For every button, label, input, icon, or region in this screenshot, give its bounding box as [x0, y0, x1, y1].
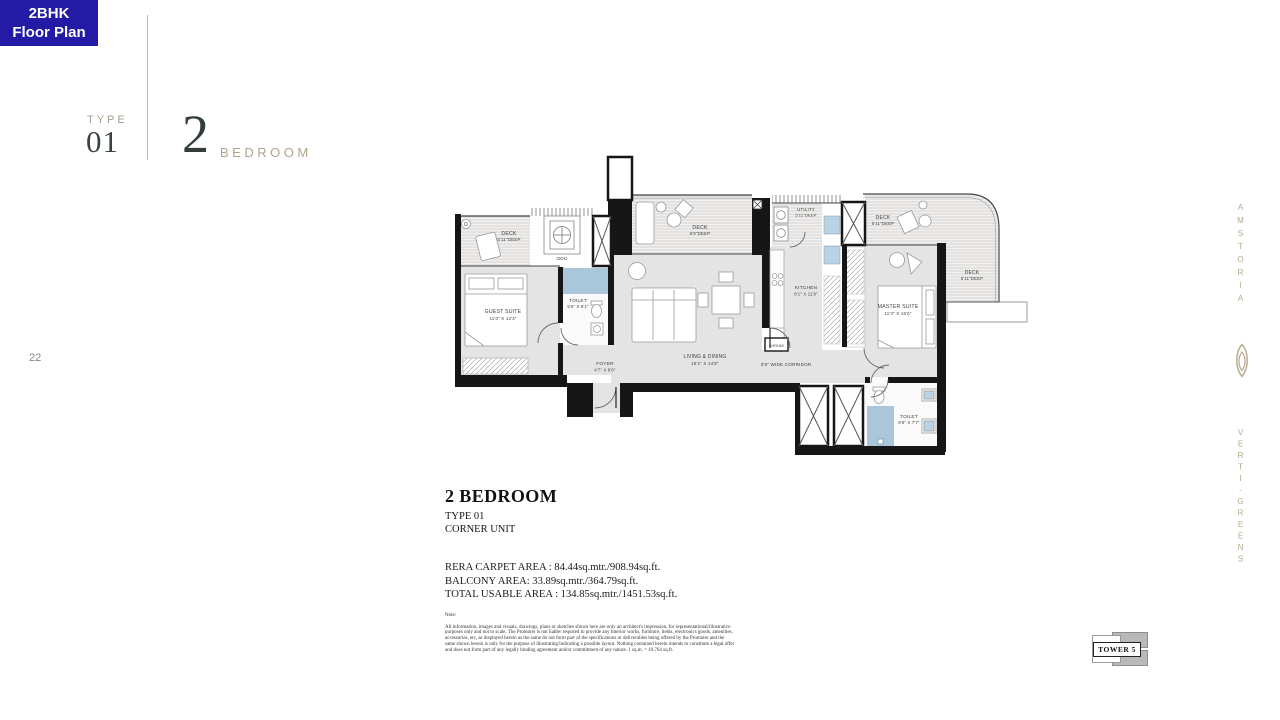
deck-table-icon — [667, 213, 681, 227]
brand-leaf-logo — [1231, 343, 1253, 379]
floor-plan: DECK 5'11"DEEP ODU GUEST SUITE 11'0" X 1… — [450, 150, 1040, 460]
brand-amstoria: AMSTORIA — [1236, 203, 1245, 307]
badge-line1: 2BHK — [29, 4, 70, 23]
plant-icon — [919, 201, 927, 209]
deck-top-right-dim: 5'11"DEEP — [872, 221, 894, 226]
window-marker-icon — [753, 200, 762, 209]
floorplan-badge: 2BHK Floor Plan — [0, 0, 98, 46]
note-label: Note: — [445, 613, 735, 619]
brand-vertigreens: VERTI-GREENS — [1236, 428, 1245, 566]
unit-details: 2 BEDROOM TYPE 01 CORNER UNIT — [445, 486, 557, 536]
unit-title: 2 BEDROOM — [445, 486, 557, 507]
kitchen-dim: 8'1" X 11'9" — [794, 292, 818, 297]
type-number: 01 — [86, 124, 119, 160]
master-suite-label: MASTER SUITE — [878, 304, 919, 310]
page-number: 22 — [29, 352, 41, 364]
balcony-area: BALCONY AREA: 33.89sq.mtr./364.79sq.ft. — [445, 575, 677, 589]
unit-type: TYPE 01 — [445, 510, 557, 523]
badge-line2: Floor Plan — [12, 23, 85, 42]
armchair-icon — [629, 263, 646, 280]
bedroom-count: 2 — [182, 103, 209, 165]
deck-left-dim: 5'11"DEEP — [497, 237, 520, 242]
rera-carpet-area: RERA CARPET AREA : 84.44sq.mtr./908.94sq… — [445, 561, 677, 575]
total-usable-area: TOTAL USABLE AREA : 134.85sq.mtr./1451.5… — [445, 588, 677, 602]
guest-suite-label: GUEST SUITE — [485, 309, 522, 315]
master-toilet-door-gap — [870, 377, 888, 383]
guest-suite-dim: 11'0" X 13'3" — [489, 316, 516, 321]
bedroom-label: BEDROOM — [220, 145, 312, 160]
foyer-label: FOYER — [596, 361, 614, 367]
reading-chair-icon — [890, 253, 905, 268]
shrine-label: SHRINE — [769, 344, 785, 348]
brochure-page: 2BHK Floor Plan TYPE 01 2 BEDROOM 22 — [0, 0, 1280, 720]
deck-right-dim: 5'11"DEEP — [961, 276, 983, 281]
tower-label: TOWER 5 — [1093, 642, 1141, 657]
kitchen-label: KITCHEN — [795, 285, 818, 291]
unit-position: CORNER UNIT — [445, 523, 557, 536]
header-divider-line — [147, 15, 148, 160]
master-suite-dim: 11'0" X 15'6" — [884, 311, 911, 316]
master-toilet-dim: 8'6" X 7'7" — [898, 420, 920, 425]
tower-key-plan: TOWER 5 — [1090, 630, 1150, 670]
odu-label: ODU — [556, 256, 568, 262]
sofa-icon — [632, 288, 696, 342]
utility-dim: 5'11"DEEP — [795, 213, 816, 218]
master-bed-icon — [878, 286, 936, 348]
area-statement: RERA CARPET AREA : 84.44sq.mtr./908.94sq… — [445, 561, 677, 602]
guest-toilet-dim: 5'6" X 8'1" — [567, 304, 589, 309]
utility-label: UTILITY — [797, 207, 815, 212]
service-duct — [608, 157, 632, 200]
corridor-label: 3'6" WIDE CORRIDOR — [761, 362, 812, 367]
odu-unit-icon — [544, 216, 580, 254]
lounger-icon — [636, 202, 654, 244]
living-dining-label: LIVING & DINING — [683, 354, 726, 360]
foyer-dim: 4'7" X 8'6" — [594, 368, 616, 373]
disclaimer-note: Note: All information, images and visual… — [445, 613, 735, 653]
kitchen-counter-icon — [770, 250, 784, 348]
living-dining-dim: 19'1" X 14'8" — [691, 361, 719, 366]
deck-center-dim: 6'9"DEEP — [690, 231, 711, 236]
floor-plan-drawing: DECK 5'11"DEEP ODU GUEST SUITE 11'0" X 1… — [450, 150, 1040, 460]
note-body: All information, images and visuals, dra… — [445, 625, 734, 653]
